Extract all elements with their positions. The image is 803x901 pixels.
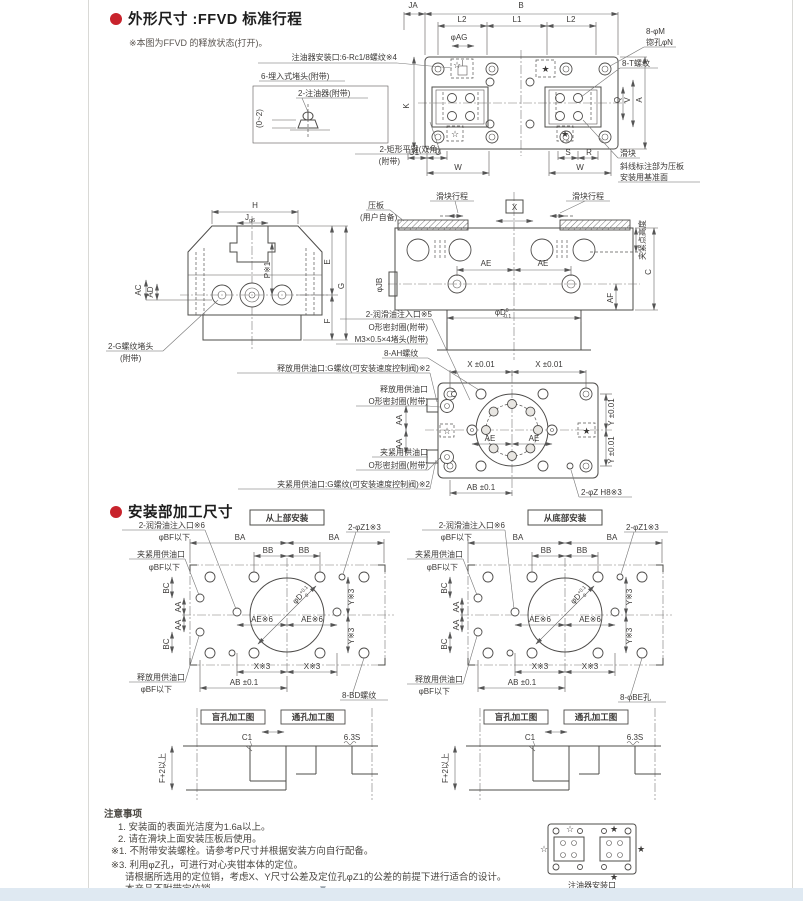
dim-ba-label: BA [607,533,618,542]
dim-x3-label: X※3 [304,662,321,671]
oiler-ports-mini-drawing: ☆ ★ ☆ ★ ★ 注油器安装口 [540,824,645,890]
note-line-3: ※1. 不附带安装螺栓。请参考P尺寸并根据安装方向自行配备。 [111,843,373,857]
callout-slider-stroke: 滑块行程 [572,191,604,201]
hole-machining-section-right: 盲孔加工图 通孔加工图 C1 6.3S F+2以上 [441,708,661,800]
callout-user-supplied: (用户自备) [360,212,398,222]
callout-release-port-g: 释放用供油口:G螺纹(可安装速度控制阀)※2 [277,363,430,373]
callout-hatch-note-1: 斜线标注部为压板 [620,161,684,171]
dim-ba-label: BA [329,533,340,542]
callout-release-port: 释放用供油口 [380,384,428,394]
footer-band [0,888,803,901]
dim-w-label: W [576,163,584,172]
red-bullet-icon [110,506,122,518]
callout-hatch-note-2: 安装用基准面 [620,172,668,182]
dim-e-label: E [323,259,332,264]
callout-oiler-port: 注油器安装口:6-Rc1/8螺纹※4 [292,52,398,62]
dim-l1-label: L1 [513,15,522,24]
oiler-detail-callouts: 注油器安装口:6-Rc1/8螺纹※4 6-埋入式堵头(附带) 2-注油器(附带)… [253,52,452,166]
callout-2-phiZ1: 2-φZ1※3 [626,523,659,532]
dim-c1-label: C1 [242,733,253,742]
callout-oring: O形密封圈(附带) [368,396,428,406]
label-through-hole: 通孔加工图 [292,712,335,722]
star-filled-mark: ★ [541,64,549,74]
dim-ae-label: AE [481,259,492,268]
star-open-mark: ☆ [443,426,451,436]
dim-y001-label: Y ±0.01 [607,436,616,464]
callout-2-phiZ: 2-φZ H8※3 [581,488,622,497]
dim-aa-label: AA [452,619,461,630]
dim-bc-label: BC [440,638,449,649]
callout-clamp-port: 夹紧用供油口 [415,549,463,559]
callout-clamp-port: 夹紧用供油口 [137,549,185,559]
dim-a-label: A [635,97,644,103]
label-blind-hole: 盲孔加工图 [212,712,255,722]
dim-ab01-label: AB ±0.1 [230,678,259,687]
callout-8-T-thread: 8-T螺纹 [622,58,650,68]
dim-bc-label: BC [440,582,449,593]
red-bullet-icon [110,13,122,25]
star-open-mark: ☆ [540,844,548,854]
section1-subnote: ※本图为FFVD 的释放状态(打开)。 [129,36,268,49]
label-mount-from-top: 从上部安装 [266,513,309,523]
callout-8-phiBE-hole: 8-φBE孔 [620,693,651,702]
callout-lube-inlet-s1: 2-润滑油注入口※5 [366,309,433,319]
catalog-page: ☆ ★ ☆ ★ JA B L2 L1 L2 φAG K A V Q U1 U W… [0,0,803,901]
hole-machining-section-left: 盲孔加工图 通孔加工图 C1 6.3S F+2以上 [158,708,378,800]
dim-aa-label: AA [452,601,461,612]
dim-s-label: S [565,148,570,157]
dim-ad-label: AD [146,286,155,297]
label-through-hole: 通孔加工图 [575,712,618,722]
dim-k-label: K [402,103,411,109]
callout-bf-under: φBF以下 [149,563,180,572]
surface-finish-label: 6.3S [627,733,643,742]
callout-2-oilers: 2-注油器(附带) [298,88,351,98]
callout-g-plug-attached: (附带) [120,353,142,363]
dim-j-label: Jg6 [245,213,255,224]
dim-r-label: R [586,148,592,157]
dim-x001-label: X ±0.01 [535,360,563,369]
dim-phijb-label: φJB [375,278,384,293]
callout-bf-under: φBF以下 [419,687,450,696]
dim-ae-label: AE [485,434,496,443]
dim-bb-label: BB [299,546,310,555]
star-filled-mark: ★ [637,844,645,854]
dim-ab01-label: AB ±0.1 [508,678,537,687]
surface-finish-label: 6.3S [344,733,360,742]
dim-bb-label: BB [263,546,274,555]
dim-bb-label: BB [541,546,552,555]
dim-phid-tol-label: φD+0.10 [569,585,592,608]
dim-g-label: G [337,283,346,289]
dim-ae6-label: AE※6 [251,615,273,624]
star-open-mark: ☆ [451,129,459,139]
dim-y001-label: Y ±0.01 [607,398,616,426]
dim-x-label: X [512,203,518,212]
dim-f2-label: F+2以上 [441,753,450,783]
dim-ae-label: AE [529,434,540,443]
star-open-mark: ☆ [453,60,461,70]
front-view-drawing: H Jg6 E G F P※1 AC AD 2-G螺纹堵头 (附带) [106,201,348,363]
dim-x3-label: X※3 [254,662,271,671]
star-filled-mark: ★ [561,129,569,139]
dim-l2-label: L2 [567,15,576,24]
dim-0to2-label: (0~2) [255,109,264,128]
dim-bc-label: BC [162,582,171,593]
dim-ae-label: AE [538,259,549,268]
dim-y3-label: Y※3 [347,588,356,605]
dim-x3-label: X※3 [582,662,599,671]
dim-y3-label: Y※3 [625,627,634,644]
callout-clamp-height: 夹紧点高度 [637,220,647,260]
callout-slider-stroke: 滑块行程 [436,191,468,201]
dim-aa-label: AA [395,414,404,425]
callout-2-phiZ1: 2-φZ1※3 [348,523,381,532]
callout-8-BD-thread: 8-BD螺纹 [342,690,376,700]
dim-h-label: H [252,201,258,210]
callout-flat-key-attached: (附带) [379,156,401,166]
dim-x3-label: X※3 [532,662,549,671]
dim-c-label: C [644,269,653,275]
dim-ae6-label: AE※6 [529,615,551,624]
dim-p1-label: P※1 [263,261,272,278]
dim-y3-label: Y※3 [625,588,634,605]
star-filled-mark: ★ [582,426,590,436]
dim-af-label: AF [606,293,615,303]
dim-phiag-label: φAG [451,33,468,42]
callout-clamp-port: 夹紧用供油口 [380,447,428,457]
dim-y3-label: Y※3 [347,627,356,644]
callout-g-plug: 2-G螺纹堵头 [108,341,153,351]
dim-w-label: W [454,163,462,172]
dim-ba-label: BA [513,533,524,542]
bottom-view-drawing: ☆ ★ X ±0.01 X ±0.01 Y ±0.01 Y ±0.01 AE A… [237,309,632,497]
callout-release-port: 释放用供油口 [137,672,185,682]
dim-x001-label: X ±0.01 [467,360,495,369]
section2-title: 安装部加工尺寸 [128,501,233,522]
callout-pressure-plate: 压板 [368,200,384,210]
dim-aa-label: AA [174,619,183,630]
callout-oring: O形密封圈(附带) [368,322,428,332]
dim-ba-label: BA [235,533,246,542]
dim-aa-label: AA [174,601,183,612]
dim-c1-label: C1 [525,733,536,742]
callout-bf-under: φBF以下 [427,563,458,572]
section1-header: 外形尺寸 :FFVD 标准行程 [110,8,302,29]
notes-title: 注意事项 [104,806,142,820]
callout-clamp-port-g: 夹紧用供油口:G螺纹(可安装速度控制阀)※2 [277,479,430,489]
callout-bf-under: φBF以下 [141,685,172,694]
plan-view-drawing: ☆ ★ ☆ ★ JA B L2 L1 L2 φAG K A V Q U1 U W… [402,1,700,182]
callout-lube-inlet-s2: 2-润滑油注入口※6 [439,520,506,530]
callout-slider: 滑块 [620,148,636,158]
dim-b-label: B [518,1,523,10]
technical-drawings: ☆ ★ ☆ ★ JA B L2 L1 L2 φAG K A V Q U1 U W… [0,0,803,901]
callout-release-port: 释放用供油口 [415,674,463,684]
section2-header: 安装部加工尺寸 [110,501,233,522]
callout-m3-plug: M3×0.5×4堵头(附带) [355,334,429,344]
dim-ae6-label: AE※6 [301,615,323,624]
dim-phid-tol-label: φD+0.10 [291,585,314,608]
dim-ae6-label: AE※6 [579,615,601,624]
callout-bf-under: φBF以下 [159,533,190,542]
callout-bf-under: φBF以下 [441,533,472,542]
section1-title: 外形尺寸 :FFVD 标准行程 [128,8,302,29]
dim-q-label: Q [613,97,622,103]
callout-flat-key: 2-矩形平键(双角) [380,144,441,154]
dim-v-label: V [623,97,632,103]
dim-f2-label: F+2以上 [158,753,167,783]
dim-ab01-label: AB ±0.1 [467,483,496,492]
callout-spotface-phiN: 锪孔φN [646,37,673,47]
label-mount-from-bottom: 从底部安装 [544,513,587,523]
callout-6-plugs: 6-埋入式堵头(附带) [261,71,330,81]
callout-oring: O形密封圈(附带) [368,460,428,470]
star-open-mark: ☆ [566,824,574,834]
mount-bottom-drawing: 从底部安装 φD+0.10 BB BB BA BA 2-φZ1※3 2-润滑油注… [407,510,672,702]
dim-f-label: F [323,318,332,323]
dim-l2-label: L2 [458,15,467,24]
star-filled-mark: ★ [610,824,618,834]
dim-ac-label: AC [134,284,143,295]
dim-bc-label: BC [162,638,171,649]
label-blind-hole: 盲孔加工图 [495,712,538,722]
callout-8-phiM: 8-φM [646,27,665,36]
mount-top-drawing: 从上部安装 φD+0.10 BB BB BA BA 2-φZ1※3 2-润滑油注… [122,510,394,700]
callout-8-AH-thread: 8-AH螺纹 [384,348,418,358]
dim-ja-label: JA [408,1,418,10]
dim-bb-label: BB [577,546,588,555]
